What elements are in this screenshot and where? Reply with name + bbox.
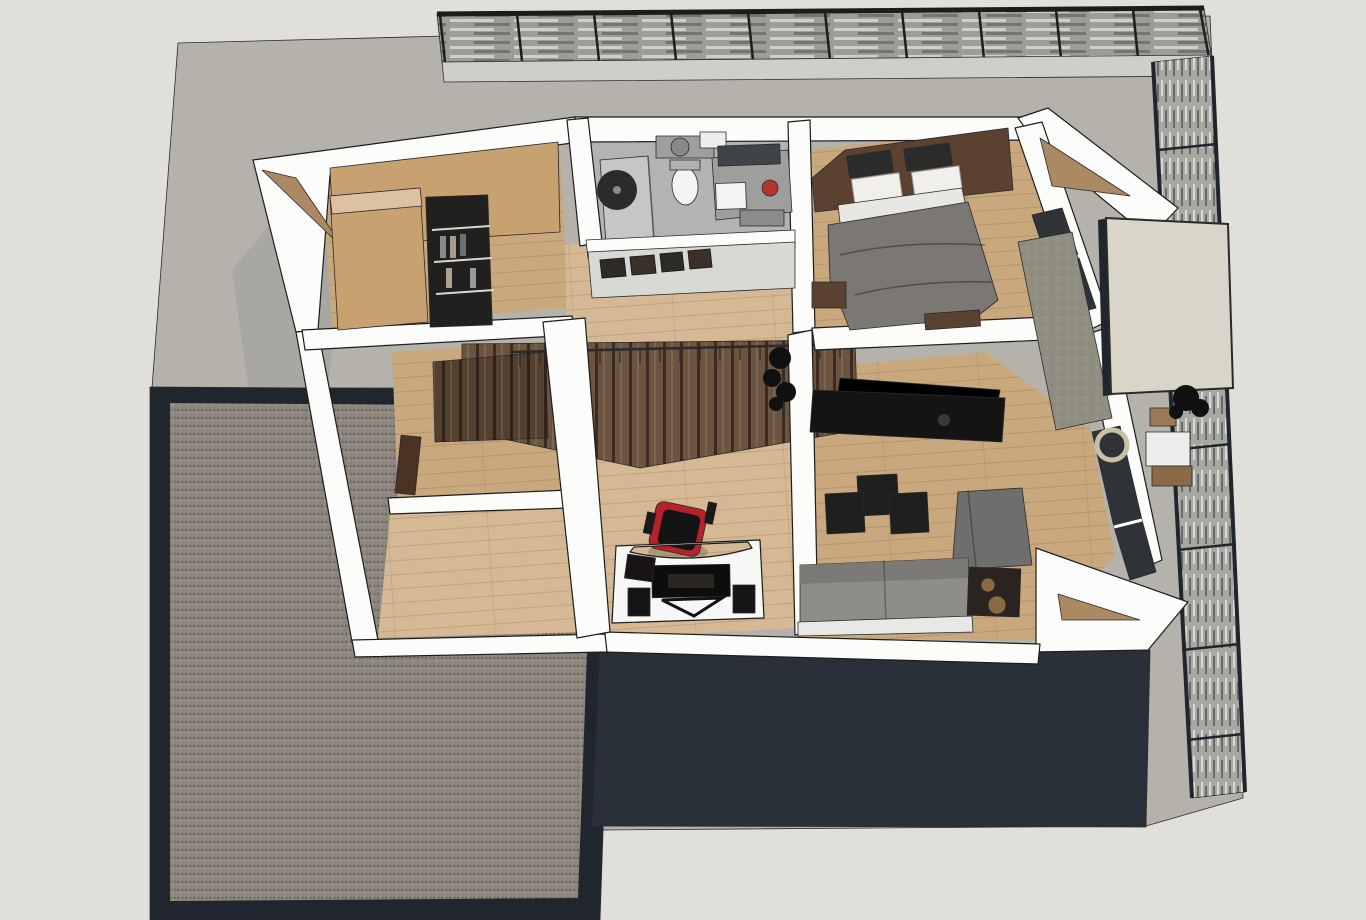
vanity-cabinet — [740, 210, 784, 226]
red-plant-pot — [762, 180, 778, 196]
lounge-chair — [952, 488, 1032, 570]
render-stage — [0, 0, 1366, 920]
mouse — [723, 599, 729, 605]
wall-bathroom-east — [788, 120, 815, 333]
speaker-cone-large — [988, 596, 1006, 614]
render-viewport[interactable] — [0, 0, 1366, 920]
balcony-seat-white — [1146, 432, 1190, 466]
sideboard-speaker — [938, 414, 950, 426]
balcony-wicker — [1152, 466, 1192, 486]
toilet-cistern — [670, 160, 700, 170]
speaker-right — [733, 585, 755, 613]
dark-facade-south — [592, 642, 1150, 827]
bathroom-transom-wall — [586, 230, 795, 298]
canopy-slab — [1106, 218, 1233, 394]
speaker-left — [628, 588, 650, 616]
extractor-fan — [671, 138, 689, 156]
canopy-panel — [1098, 218, 1233, 396]
nightstand — [812, 282, 846, 308]
bed-foot-bench — [925, 310, 981, 330]
pouf-right — [889, 492, 929, 534]
spare-lower-planks — [378, 508, 590, 638]
pergola-louvered-roof — [437, 8, 1214, 82]
desk-console — [624, 554, 655, 582]
living-room — [798, 378, 1032, 636]
speaker-cone-small — [981, 578, 995, 592]
shower-head-center — [613, 186, 621, 194]
vanity-sink — [716, 182, 747, 209]
vanity-mirror — [718, 144, 781, 166]
stair-treads-left — [433, 352, 548, 442]
monitor-screen — [668, 574, 714, 588]
pouf-left — [825, 492, 865, 534]
